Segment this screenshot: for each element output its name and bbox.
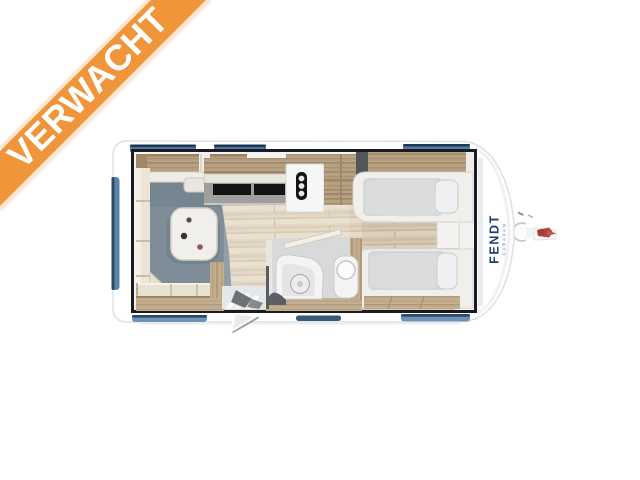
svg-text:CARAVAN: CARAVAN xyxy=(502,222,507,255)
svg-text:FENDT: FENDT xyxy=(488,214,502,264)
